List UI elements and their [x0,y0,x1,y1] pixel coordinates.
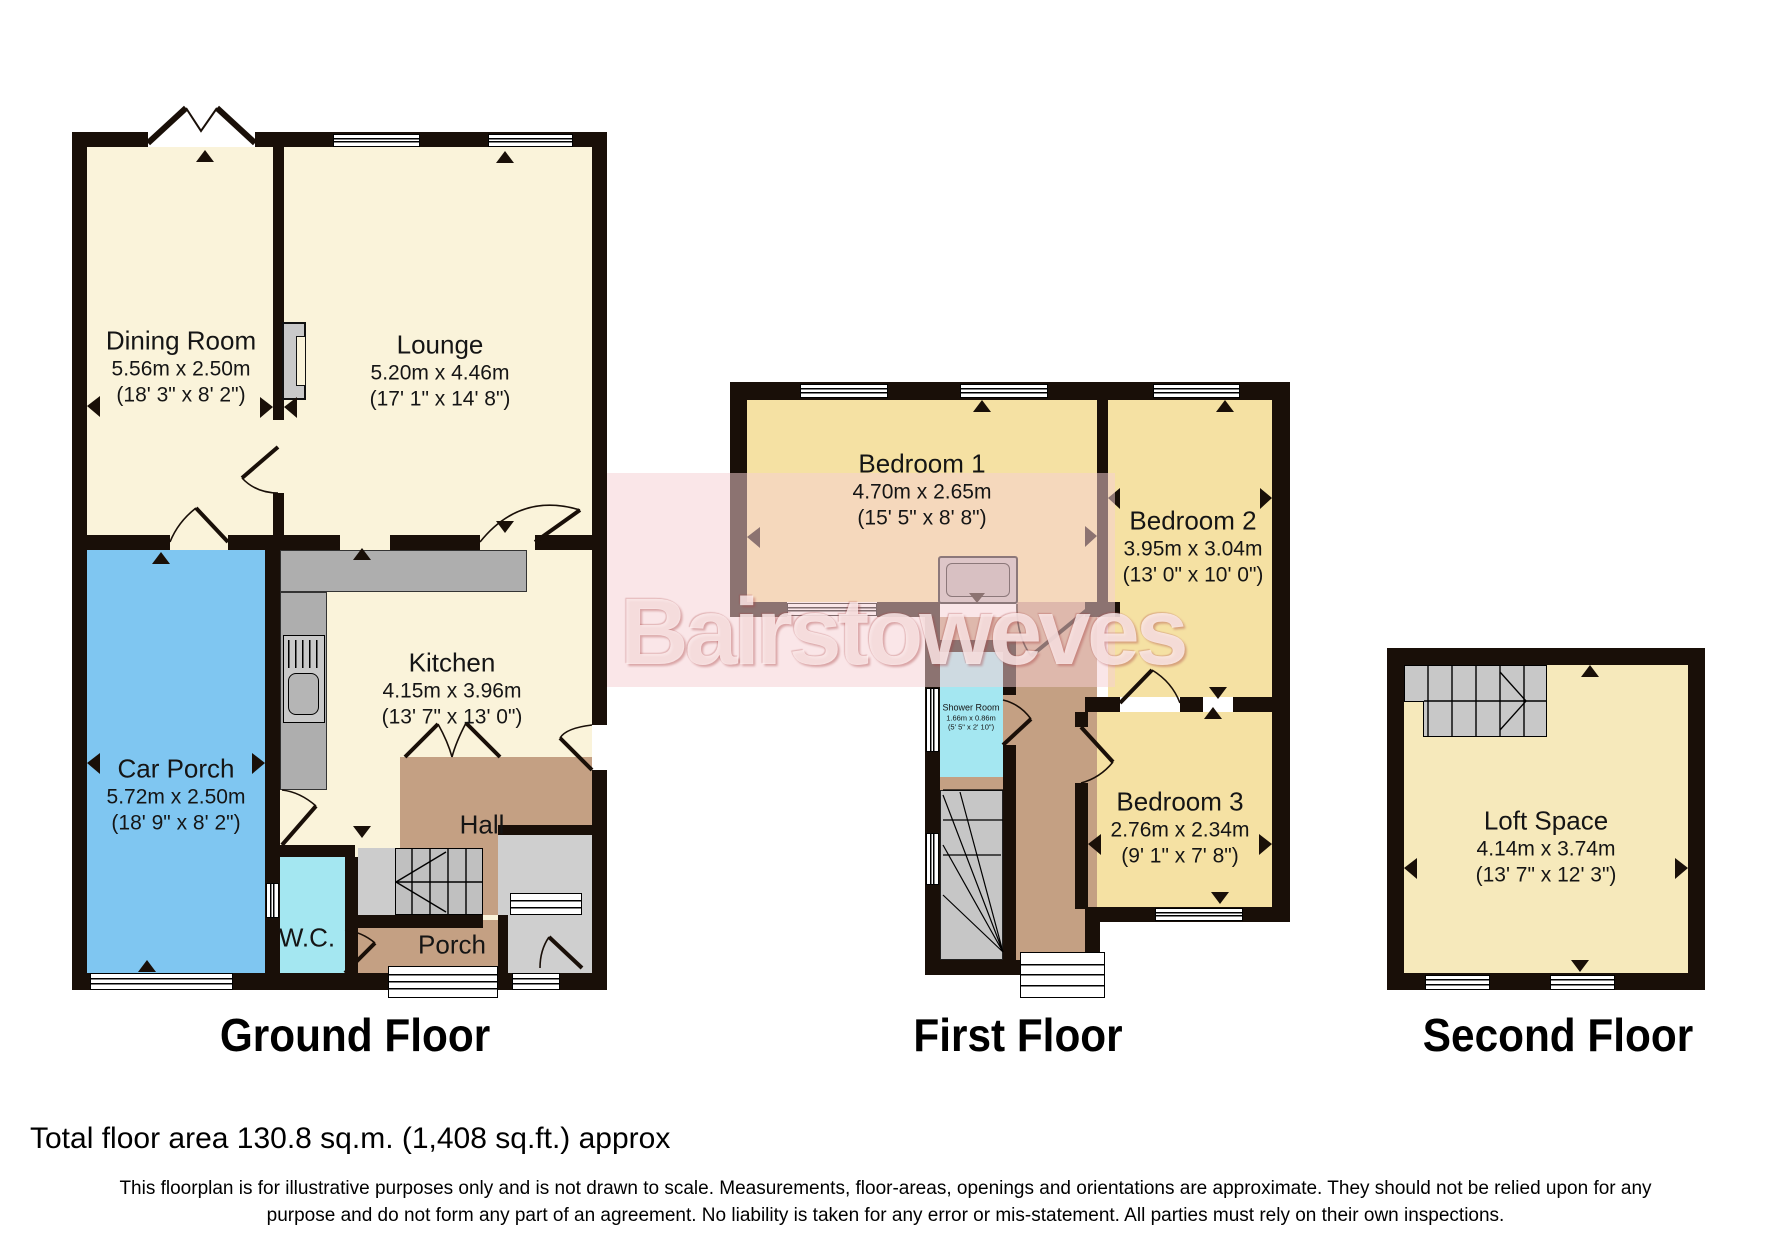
entry-arrow-icon [1216,400,1234,412]
entry-arrow-icon [353,826,371,838]
entry-arrow-icon [138,960,156,972]
room-label-dining: Dining Room 5.56m x 2.50m (18' 3" x 8' 2… [106,326,256,409]
stairs-first-treads [943,790,1003,952]
room-name: Bedroom 2 [1123,506,1264,537]
room-name: Hall [460,810,505,841]
room-label-loft-space: Loft Space 4.14m x 3.74m (13' 7" x 12' 3… [1476,806,1617,889]
entry-arrow-icon [1211,892,1229,904]
door-arc [480,505,580,542]
door-arc [549,937,582,968]
room-dim-metric: 2.76m x 2.34m [1111,818,1250,844]
door-arc [560,738,592,770]
room-dim-metric: 4.14m x 3.74m [1476,837,1617,863]
entry-arrow-icon [260,397,273,418]
bay-glass-line [186,108,217,131]
total-floor-area: Total floor area 130.8 sq.m. (1,408 sq.f… [30,1122,670,1156]
floor-title-ground: Ground Floor [220,1008,490,1062]
stair-tread-line [943,790,1003,855]
room-dim-imperial: (18' 3" x 8' 2") [106,383,256,409]
room-dim-metric: 5.20m x 4.46m [370,361,511,387]
stair-tread-line [1424,666,1547,736]
entry-arrow-icon [252,753,265,774]
door-arc [1081,762,1113,783]
room-name: Porch [418,930,486,961]
door-arc [1081,727,1113,762]
entry-arrow-icon [496,521,514,533]
room-label-hall: Hall [460,810,505,841]
floor-title-second: Second Floor [1423,1008,1693,1062]
room-dim-imperial: (13' 7" x 12' 3") [1476,863,1617,889]
entry-arrow-icon [152,552,170,564]
stairs-second-treads [1424,666,1547,736]
entry-arrow-icon [1581,665,1599,677]
room-label-bedroom-3: Bedroom 3 2.76m x 2.34m (9' 1" x 7' 8") [1111,787,1250,870]
room-dim-metric: 5.56m x 2.50m [106,357,256,383]
bay-window-icon [148,108,255,143]
door-arc [282,806,316,845]
room-name: Bedroom 1 [853,449,992,480]
door-arc [282,790,316,806]
room-name: Bedroom 3 [1111,787,1250,818]
room-label-bedroom-2: Bedroom 2 3.95m x 3.04m (13' 0" x 10' 0"… [1123,506,1264,589]
room-dim-imperial: (9' 1" x 7' 8") [1111,844,1250,870]
disclaimer-line-1: This floorplan is for illustrative purpo… [0,1178,1771,1200]
stair-tread-line [396,849,483,914]
door-arc [242,478,278,493]
entry-arrow-icon [196,150,214,162]
entry-arrow-icon [87,753,100,774]
door-arc [1003,700,1031,719]
room-label-car-porch: Car Porch 5.72m x 2.50m (18' 9" x 8' 2") [107,754,246,837]
watermark-text: Bairstoweves [620,578,1120,687]
room-dim-metric: 5.72m x 2.50m [107,785,246,811]
entry-arrow-icon [1675,858,1688,879]
room-label-bedroom-1: Bedroom 1 4.70m x 2.65m (15' 5" x 8' 8") [853,449,992,532]
entry-arrow-icon [496,151,514,163]
door-arc [535,510,580,542]
room-label-porch: Porch [418,930,486,961]
entry-arrow-icon [1571,960,1589,972]
room-dim-metric: 4.15m x 3.96m [382,679,523,705]
room-label-kitchen: Kitchen 4.15m x 3.96m (13' 7" x 13' 0") [382,648,523,731]
room-dim-metric: 1.66m x 0.86m [942,714,999,723]
entry-arrow-icon [1088,834,1101,855]
entry-arrow-icon [87,396,100,417]
room-dim-imperial: (13' 7" x 13' 0") [382,705,523,731]
entry-arrow-icon [284,397,297,418]
room-label-shower-room: Shower Room 1.66m x 0.86m (5' 5" x 2' 10… [942,703,999,732]
room-name: Dining Room [106,326,256,357]
room-dim-imperial: (5' 5" x 2' 10") [942,723,999,732]
door-arc [242,447,278,478]
room-name: W.C. [279,923,335,954]
room-name: Loft Space [1476,806,1617,837]
room-dim-imperial: (17' 1" x 14' 8") [370,387,511,413]
stair-tread-line [943,792,1003,952]
room-label-wc: W.C. [279,923,335,954]
entry-arrow-icon [973,400,991,412]
door-arc [540,937,549,968]
bay-wall-line [148,108,186,143]
room-name: Kitchen [382,648,523,679]
bay-wall-line [217,108,255,143]
room-label-lounge: Lounge 5.20m x 4.46m (17' 1" x 14' 8") [370,330,511,413]
room-dim-imperial: (15' 5" x 8' 8") [853,506,992,532]
room-name: Shower Room [942,703,999,714]
room-dim-imperial: (18' 9" x 8' 2") [107,811,246,837]
door-arc [196,508,228,542]
door-arc [345,930,375,943]
floorplan-canvas: Bairstoweves Dining Room 5.56m x 2.50m (… [0,0,1771,1240]
entry-arrow-icon [1259,834,1272,855]
entry-arrow-icon [1209,687,1227,699]
door-arc [170,508,196,542]
entry-arrow-icon [1204,707,1222,719]
disclaimer-line-2: purpose and do not form any part of an a… [0,1205,1771,1227]
door-arc [1003,719,1031,745]
entry-arrow-icon [1404,858,1417,879]
room-name: Lounge [370,330,511,361]
door-arc [345,943,375,973]
room-name: Car Porch [107,754,246,785]
door-arc [560,725,592,738]
entry-arrow-icon [353,548,371,560]
room-dim-metric: 3.95m x 3.04m [1123,537,1264,563]
floor-title-first: First Floor [913,1008,1122,1062]
room-dim-metric: 4.70m x 2.65m [853,480,992,506]
stairs-ground-treads [396,849,483,914]
